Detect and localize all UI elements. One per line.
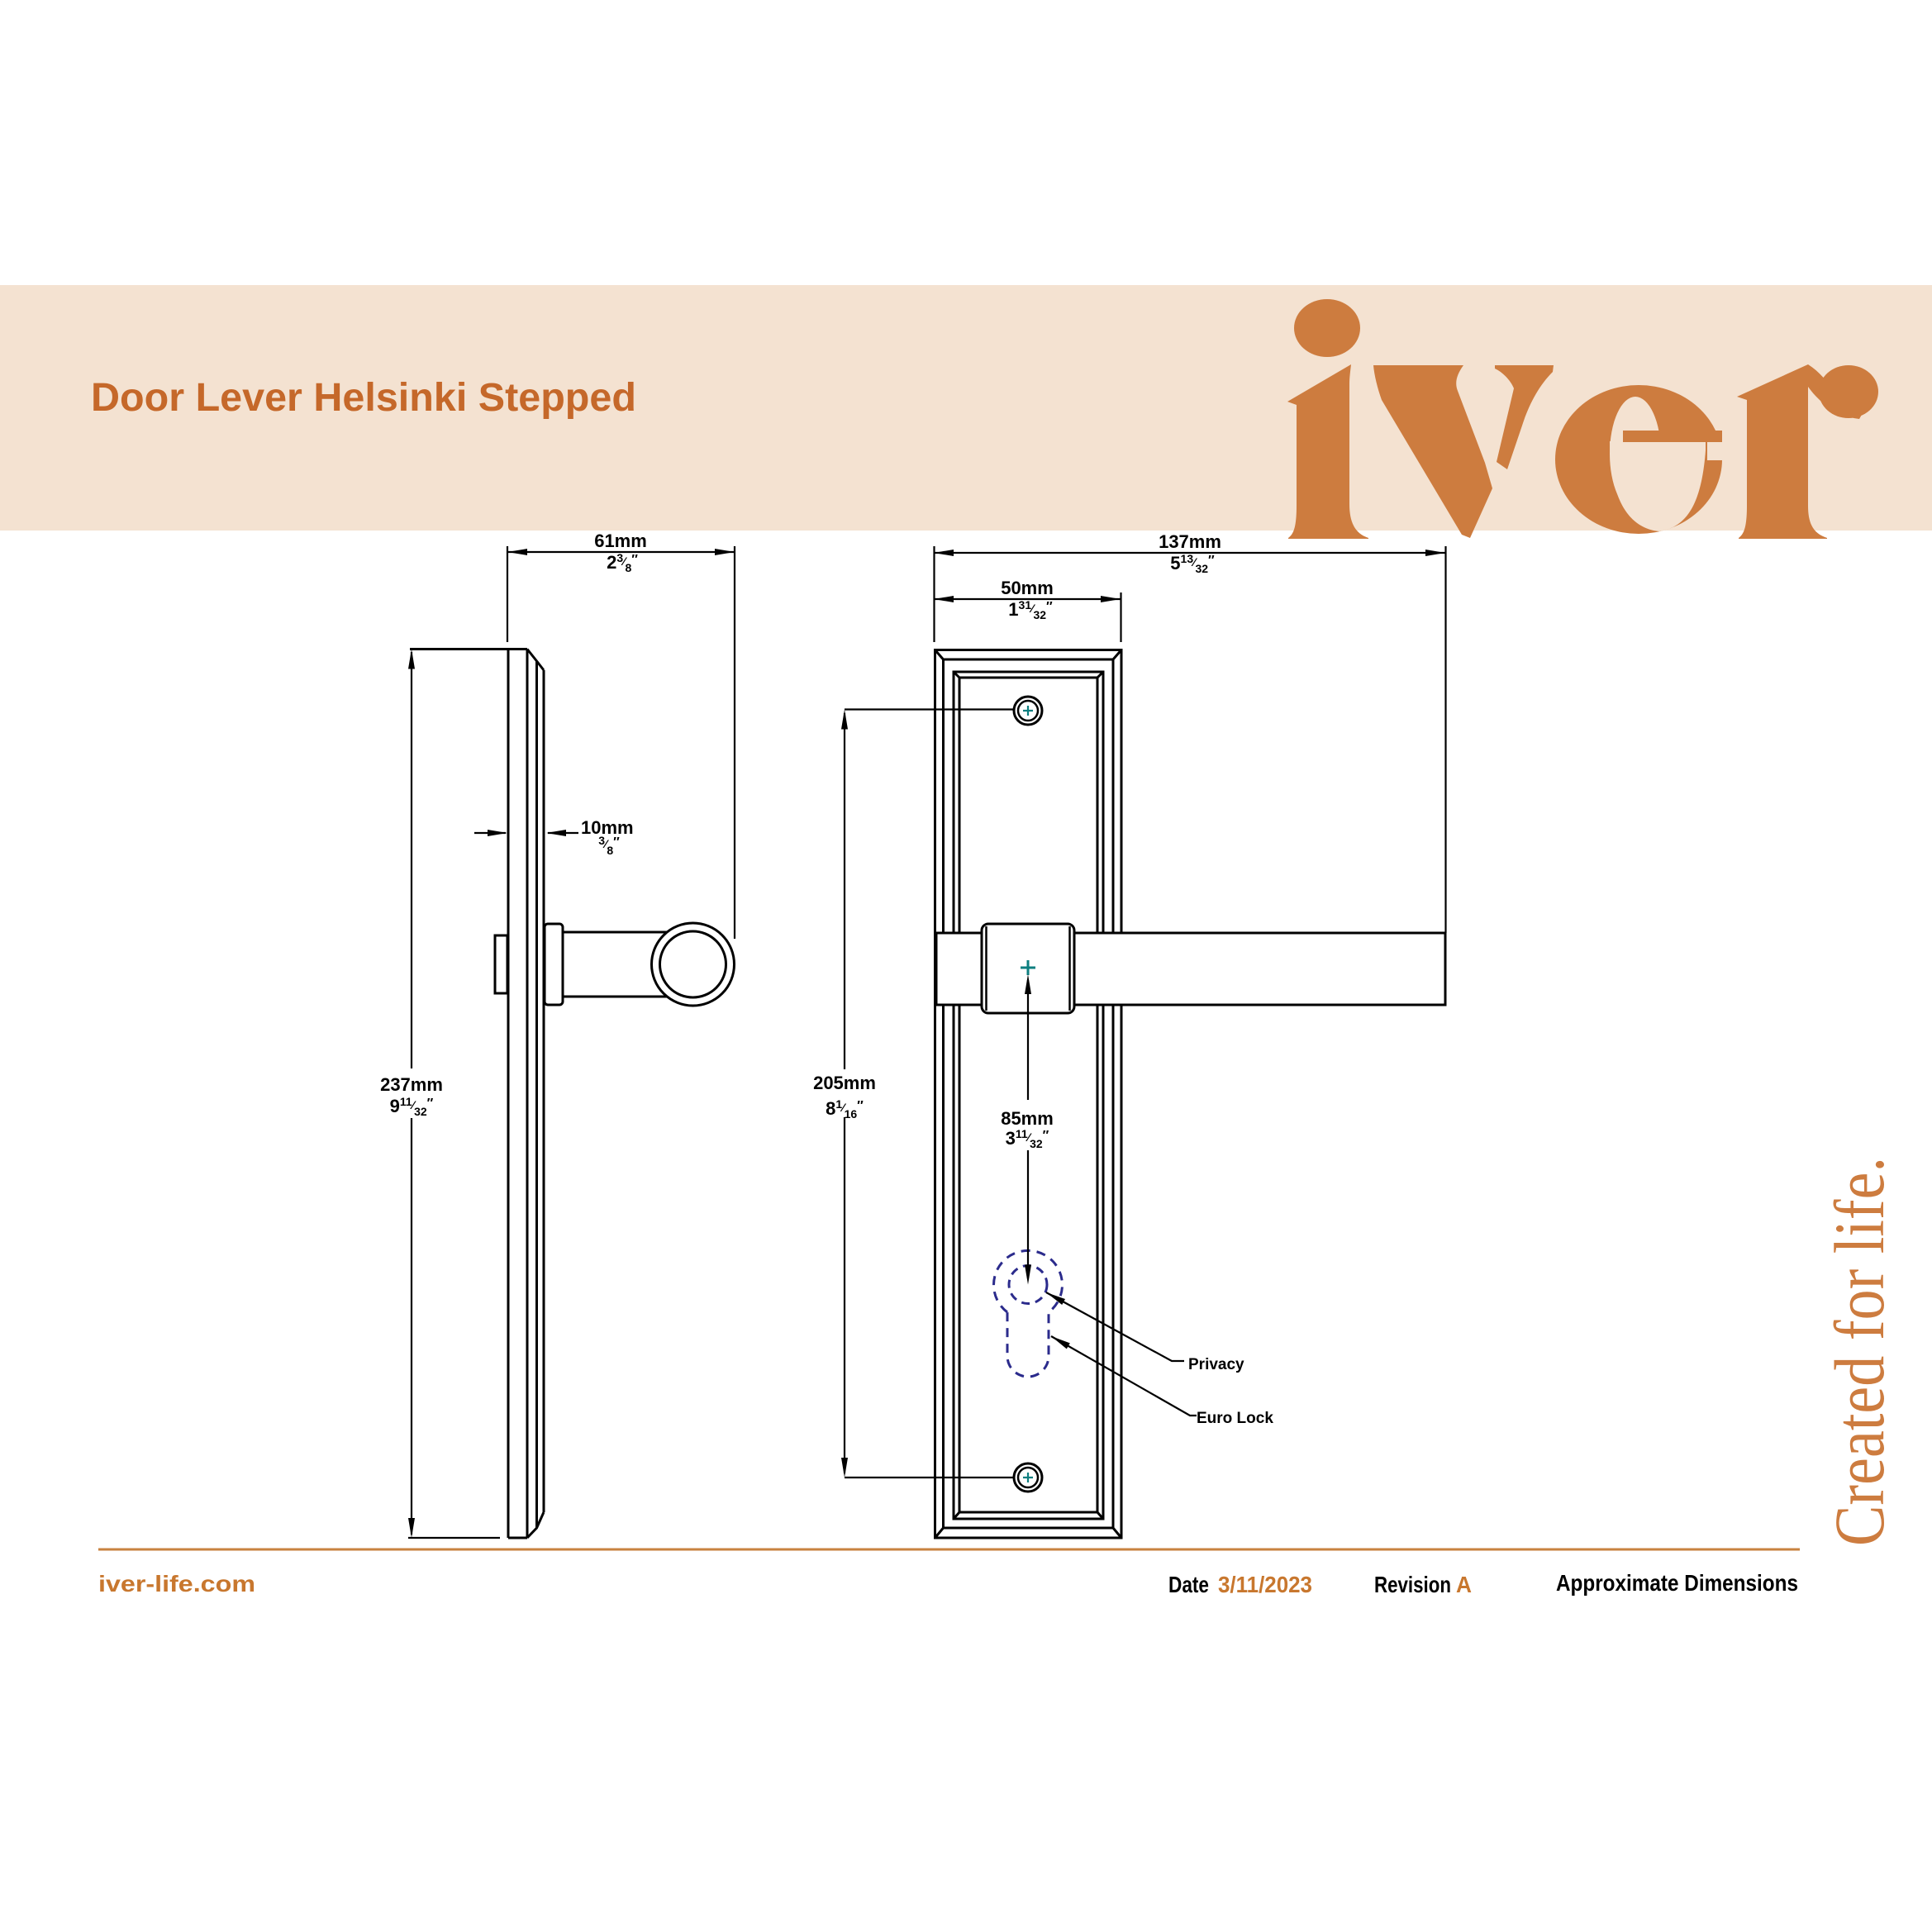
svg-text:205mm: 205mm bbox=[813, 1073, 876, 1093]
svg-text:Privacy: Privacy bbox=[1188, 1356, 1244, 1373]
svg-text:Euro Lock: Euro Lock bbox=[1197, 1410, 1273, 1427]
svg-text:Created for life.: Created for life. bbox=[1820, 1157, 1899, 1546]
svg-text:Date: Date bbox=[1168, 1572, 1209, 1597]
svg-text:iver-life.com: iver-life.com bbox=[98, 1571, 255, 1597]
svg-text:50mm: 50mm bbox=[1001, 578, 1054, 598]
svg-text:3/11/2023: 3/11/2023 bbox=[1218, 1572, 1312, 1597]
svg-text:Door Lever Helsinki Stepped: Door Lever Helsinki Stepped bbox=[91, 376, 636, 420]
svg-text:137mm: 137mm bbox=[1159, 531, 1221, 552]
svg-text:85mm: 85mm bbox=[1001, 1108, 1054, 1129]
svg-text:61mm: 61mm bbox=[594, 531, 647, 551]
svg-text:10mm: 10mm bbox=[581, 817, 634, 838]
svg-text:A: A bbox=[1456, 1572, 1472, 1597]
svg-text:Revision: Revision bbox=[1374, 1572, 1451, 1597]
svg-text:237mm: 237mm bbox=[380, 1074, 443, 1095]
svg-text:Approximate Dimensions: Approximate Dimensions bbox=[1556, 1570, 1798, 1596]
